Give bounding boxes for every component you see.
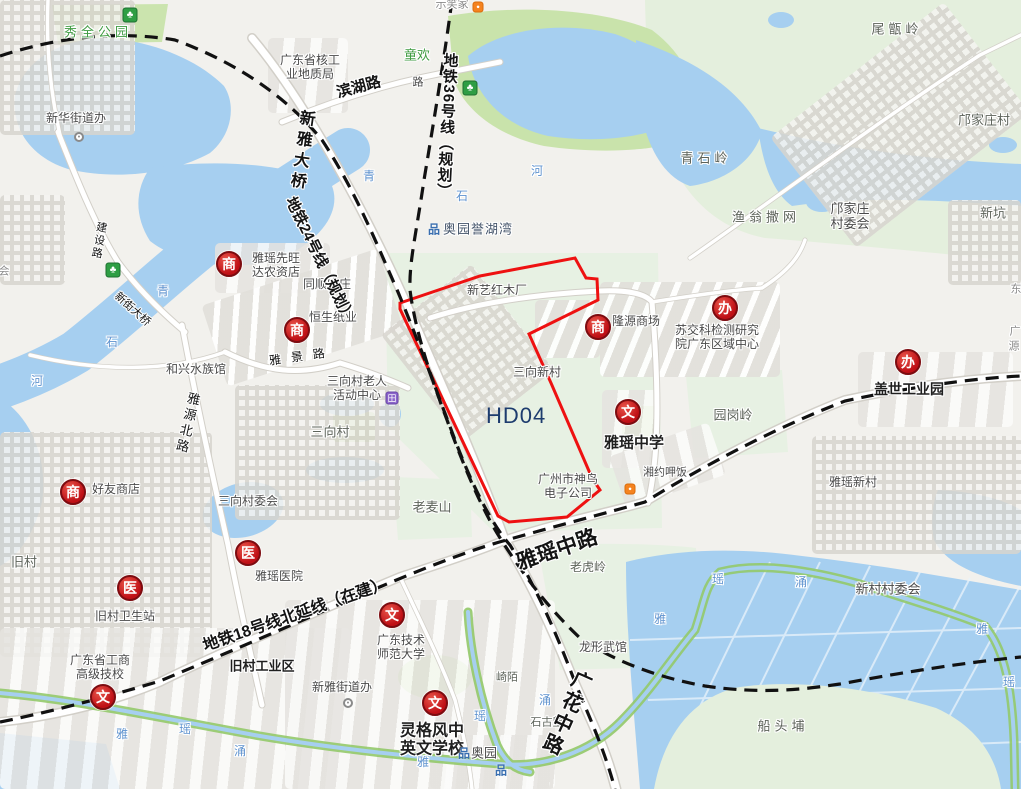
gov-marker-icon-1: •: [74, 132, 84, 142]
aoyuan: 奥园: [471, 747, 497, 762]
hospital-icon-1: 医: [235, 540, 261, 566]
jiucun-village: 旧村: [11, 556, 37, 571]
nuclear-geology-bureau: 广东省核工 业地质局: [280, 54, 340, 82]
culture-icon-4: 文: [90, 684, 116, 710]
commerce-icon-1: 商: [216, 251, 242, 277]
sujiaoke-center: 苏交科检测研究 院广东区域中心: [675, 324, 759, 352]
right-edge-clipped-2: 广: [1010, 326, 1021, 339]
culture-icon-3: 文: [422, 690, 448, 716]
water-yao-2: 瑶: [1003, 676, 1015, 690]
gongshang-technical-school: 广东省工商 高级技校: [70, 654, 130, 682]
xinyi-redwood-factory: 新艺红木厂: [467, 284, 527, 298]
yayao-xianwangda-store: 雅瑶先旺 达农资店: [252, 252, 300, 280]
water-shi-1: 石: [456, 190, 468, 204]
elderly-activity-center: 三向村老人 活动中心: [327, 375, 387, 403]
right-edge-clipped-1: 东: [1011, 284, 1021, 297]
water-ya-2: 雅: [976, 623, 988, 637]
water-he-1: 河: [531, 165, 543, 179]
commerce-icon-2: 商: [284, 317, 310, 343]
gov-marker-icon-2: •: [343, 698, 353, 708]
water-shi-2: 石: [106, 336, 118, 350]
building-icon-2: 品: [458, 745, 470, 762]
xiangyue-restaurant: 湘约呷饭: [643, 467, 687, 480]
sanxiang-village: 三向村: [310, 426, 349, 441]
jiucun-clinic: 旧村卫生站: [95, 610, 155, 624]
right-edge-clipped-3: 源: [1009, 341, 1020, 354]
park-icon-2: ♣: [463, 81, 478, 96]
xincun-committee: 新村村委会: [855, 583, 920, 598]
culture-icon-2: 文: [379, 602, 405, 628]
linggefeng-school: 灵格风中 英文学校: [400, 723, 464, 760]
building-icon-1: 品: [428, 221, 440, 238]
water-chong-2: 涌: [539, 694, 551, 708]
yuangangling-hill: 园岗岭: [713, 409, 752, 424]
park-icon-3: ♣: [106, 263, 121, 278]
yayao-xincun: 雅瑶新村: [829, 476, 877, 490]
water-qing-2: 青: [157, 285, 169, 299]
hexing-aquarium: 和兴水族馆: [166, 363, 226, 377]
kuangjiazhuang-village: 邝家庄村: [958, 114, 1010, 129]
qingshiling-hill: 青石岭: [680, 152, 731, 167]
water-yao-4: 瑶: [179, 723, 191, 737]
office-icon-1: 办: [712, 295, 738, 321]
culture-icon-1: 文: [615, 399, 641, 425]
laohuling-hill: 老虎岭: [570, 561, 606, 575]
map-canvas: 秀全公园新华街道办广东省核工 业地质局童欢示笑家路奥园誉湖湾尾甑岭邝家庄村青石岭…: [0, 0, 1021, 789]
normal-university: 广东技术 师范大学: [377, 634, 425, 662]
laomaishan-hill: 老麦山: [412, 501, 451, 516]
longxing-martial-hall: 龙形武馆: [579, 641, 627, 655]
water-ya-4: 雅: [116, 728, 128, 742]
zone-code-label: HD04: [486, 403, 546, 429]
xinhua-street-office: 新华街道办: [46, 112, 106, 126]
small-road-char: 路: [413, 77, 424, 90]
longyuan-mall: 隆源商场: [612, 315, 660, 329]
poi-orange-icon-2: ●: [625, 484, 636, 495]
poi-orange-icon-1: ●: [473, 2, 484, 13]
office-icon-2: 办: [895, 349, 921, 375]
water-chong-3: 涌: [234, 745, 246, 759]
left-edge-clipped: 会: [0, 266, 10, 279]
xiuquan-park: 秀全公园: [64, 26, 132, 41]
sanxiang-xincun: 三向新村: [513, 366, 561, 380]
yuweng-sawang: 渔翁撒网: [732, 211, 800, 226]
gaishi-industrial-park: 盖世工业园: [874, 381, 944, 397]
qimo: 崎陌: [496, 672, 518, 685]
water-qing-1: 青: [363, 170, 375, 184]
haoyou-store: 好友商店: [92, 483, 140, 497]
top-edge-clipped: 示笑家: [436, 0, 469, 11]
tonghuan: 童欢: [404, 49, 430, 64]
building-icon-3: 品: [495, 762, 507, 779]
water-yao-1: 瑶: [712, 573, 724, 587]
water-chong-1: 涌: [795, 576, 807, 590]
water-ya-1: 雅: [654, 613, 666, 627]
commerce-icon-4: 商: [60, 479, 86, 505]
yayao-middle-school: 雅瑶中学: [604, 434, 664, 451]
kuangjiazhuang-committee: 邝家庄 村委会: [830, 202, 869, 232]
water-yao-3: 瑶: [474, 710, 486, 724]
shenniao-electronics: 广州市神鸟 电子公司: [538, 473, 598, 501]
water-ya-3: 雅: [417, 756, 429, 770]
aoyuan-yuhuwan: 奥园誉湖湾: [443, 223, 513, 238]
chuantoubu: 船头埔: [757, 720, 808, 735]
map-labels-layer: 秀全公园新华街道办广东省核工 业地质局童欢示笑家路奥园誉湖湾尾甑岭邝家庄村青石岭…: [0, 0, 1021, 789]
park-icon-1: ♣: [123, 8, 138, 23]
weizengling-hill: 尾甑岭: [871, 23, 922, 38]
jiucun-industrial-zone: 旧村工业区: [229, 660, 294, 675]
community-center-icon: 田: [386, 392, 399, 405]
water-he-2: 河: [31, 375, 43, 389]
commerce-icon-3: 商: [585, 314, 611, 340]
xinkeng: 新坑: [980, 207, 1006, 222]
xinya-street-office: 新雅街道办: [312, 681, 372, 695]
hospital-icon-2: 医: [117, 575, 143, 601]
sanxiang-committee: 三向村委会: [218, 495, 278, 509]
yayao-hospital: 雅瑶医院: [255, 570, 303, 584]
